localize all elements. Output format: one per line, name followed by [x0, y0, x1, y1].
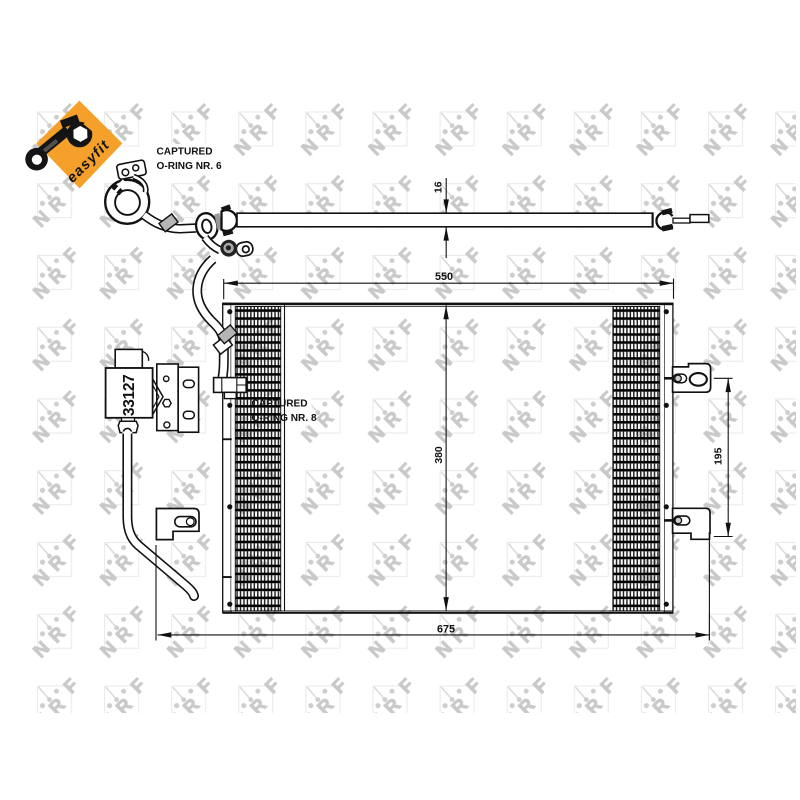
svg-text:16: 16: [433, 181, 444, 193]
svg-text:550: 550: [435, 271, 453, 283]
svg-text:CAPTURED: CAPTURED: [157, 146, 213, 157]
svg-text:675: 675: [437, 623, 455, 635]
svg-text:380: 380: [434, 446, 445, 464]
svg-text:195: 195: [714, 447, 725, 465]
svg-text:O-RING NR. 6: O-RING NR. 6: [157, 161, 222, 172]
svg-text:33127: 33127: [121, 374, 138, 416]
